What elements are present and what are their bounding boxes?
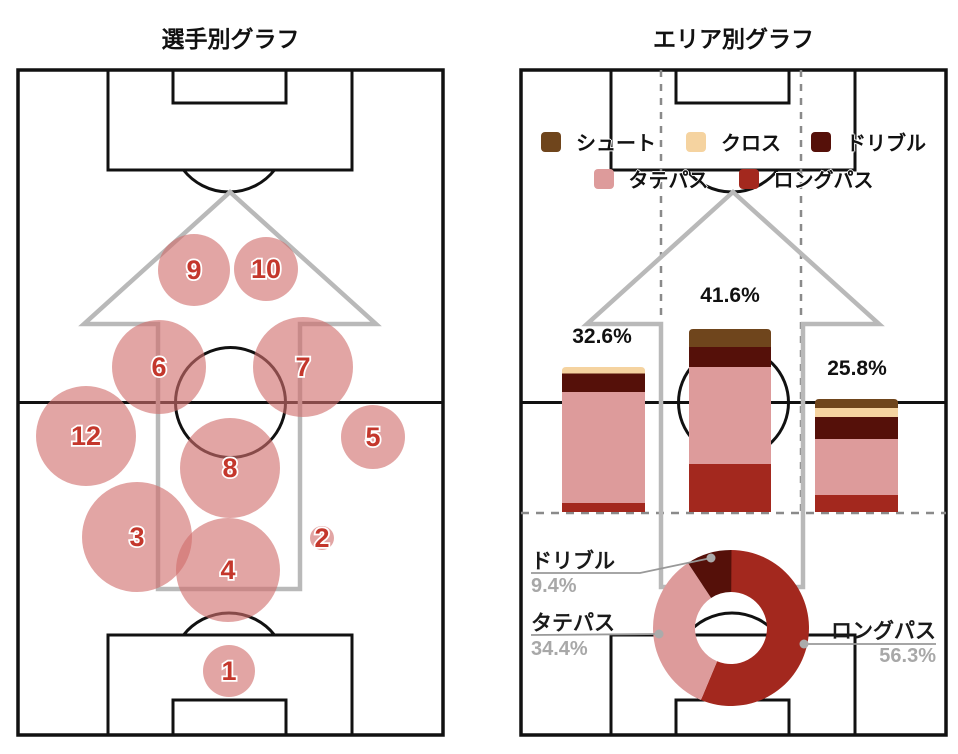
leader-dot-tate: [655, 630, 664, 639]
player-bubbles: 1234567891012: [36, 234, 405, 697]
goal-box-bottom: [173, 700, 286, 735]
player-number-3: 3: [129, 522, 144, 552]
legend-label-dribble: ドリブル: [846, 127, 926, 156]
bar-segment-tate: [562, 392, 645, 503]
legend-item-tate: タテパス: [594, 164, 709, 193]
bar-segment-long: [562, 503, 645, 512]
penalty-arc-top: [184, 170, 275, 192]
player-number-4: 4: [220, 555, 235, 585]
donut-label-dribble: ドリブル: [531, 545, 615, 575]
bar-total-label-left-lane: 32.6%: [572, 325, 632, 349]
bar-segment-cross: [562, 367, 645, 374]
legend-label-tate: タテパス: [629, 164, 709, 193]
legend-swatch-cross: [686, 132, 706, 152]
donut-value-long-pass: 56.3%: [736, 645, 936, 668]
player-number-6: 6: [151, 352, 166, 382]
player-number-10: 10: [251, 254, 281, 284]
legend-label-long: ロングパス: [774, 164, 874, 193]
legend-swatch-dribble: [811, 132, 831, 152]
bar-segment-dribble: [815, 417, 898, 439]
legend-row-1: シュートクロスドリブル: [541, 127, 926, 156]
donut-value-tate-pass: 34.4%: [531, 638, 588, 661]
bar-segment-long: [689, 464, 771, 512]
legend-swatch-tate: [594, 169, 614, 189]
bar-center-lane: [689, 329, 771, 512]
legend-item-shoot: シュート: [541, 127, 656, 156]
bar-segment-shoot: [689, 329, 771, 347]
leader-dot-dribble: [707, 554, 716, 563]
left-panel-title: 選手別グラフ: [18, 20, 443, 54]
player-number-1: 1: [221, 656, 236, 686]
player-number-5: 5: [365, 422, 380, 452]
legend-swatch-long: [739, 169, 759, 189]
legend-item-long: ロングパス: [739, 164, 874, 193]
player-number-12: 12: [71, 421, 101, 451]
legend: シュートクロスドリブルタテパスロングパス: [521, 127, 946, 193]
player-number-8: 8: [222, 453, 237, 483]
legend-swatch-shoot: [541, 132, 561, 152]
bar-segment-dribble: [562, 374, 645, 393]
legend-label-cross: クロス: [721, 127, 781, 156]
bar-segment-tate: [689, 367, 771, 464]
donut-label-long-pass: ロングパス: [736, 615, 936, 645]
bar-segment-tate: [815, 439, 898, 495]
bar-segment-long: [815, 495, 898, 512]
bar-right-lane: [815, 399, 898, 512]
penalty-box-top: [108, 70, 352, 170]
donut-label-tate-pass: タテパス: [531, 607, 615, 637]
right-panel-title: エリア別グラフ: [521, 20, 946, 54]
legend-label-shoot: シュート: [576, 127, 656, 156]
legend-item-cross: クロス: [686, 127, 781, 156]
legend-row-2: タテパスロングパス: [594, 164, 874, 193]
bar-total-label-right-lane: 25.8%: [827, 357, 887, 381]
player-number-7: 7: [295, 352, 310, 382]
soccer-analytics-dashboard: 1234567891012 選手別グラフ エリア別グラフ シュートクロスドリブル…: [0, 0, 958, 754]
player-number-2: 2: [314, 523, 329, 553]
bar-left-lane: [562, 367, 645, 512]
goal-box-top: [173, 70, 286, 103]
donut-value-dribble: 9.4%: [531, 575, 577, 598]
player-number-9: 9: [186, 255, 201, 285]
bar-total-label-center-lane: 41.6%: [700, 284, 760, 308]
bar-segment-cross: [815, 408, 898, 417]
goal-box-top: [676, 70, 789, 103]
legend-item-dribble: ドリブル: [811, 127, 926, 156]
bar-segment-dribble: [689, 347, 771, 367]
bar-segment-shoot: [815, 399, 898, 408]
